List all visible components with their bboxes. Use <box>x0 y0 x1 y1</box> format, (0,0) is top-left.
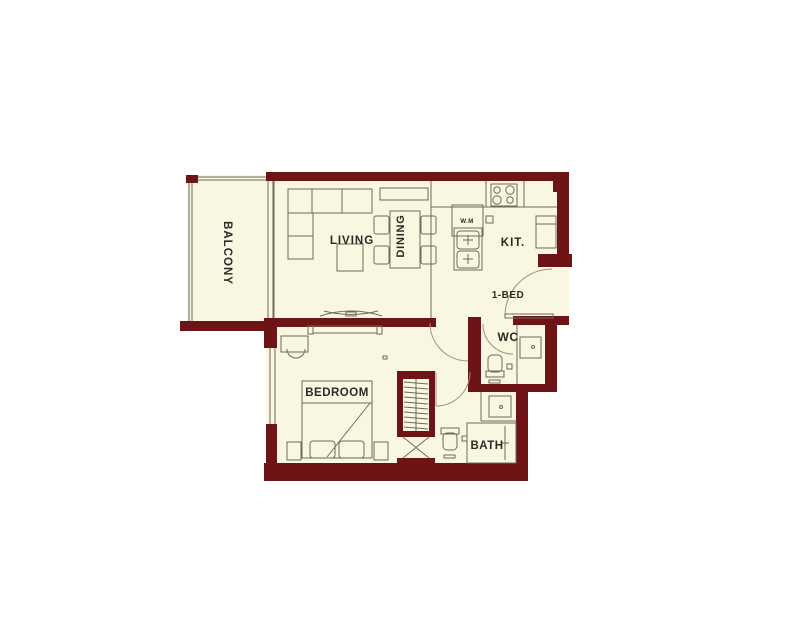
wall-bottom <box>264 463 528 481</box>
wall-top <box>266 172 557 181</box>
shaft-top-bar <box>397 431 435 437</box>
living-label: LIVING <box>330 235 374 247</box>
dining-label: DINING <box>395 214 407 257</box>
balcony-label: BALCONY <box>221 221 233 285</box>
wall-wc-top <box>513 316 569 325</box>
wardrobe-left-bar <box>397 376 403 436</box>
wall-wc-right <box>545 325 557 387</box>
bedroom-label: BEDROOM <box>305 387 369 399</box>
entrance-threshold <box>545 266 569 318</box>
bath-label: BATH <box>470 440 503 452</box>
wall-balcony-corner <box>186 175 198 183</box>
wc-label: WC <box>498 330 519 344</box>
wall-left-lower <box>266 424 277 467</box>
wall-entrance-block <box>538 254 572 267</box>
wall-wc-bottom <box>468 384 557 392</box>
wall-right-upper <box>557 181 569 254</box>
kitchen-label: KIT. <box>501 237 525 249</box>
washing-machine-label: W.M <box>460 219 473 225</box>
floor-plan-page: BALCONY LIVING DINING KIT. 1-BED WC BEDR… <box>0 0 796 640</box>
unit-type-label: 1-BED <box>492 290 525 301</box>
wall-bath-right <box>516 392 528 467</box>
wall-balcony-bottom <box>180 321 275 331</box>
wardrobe-right-bar <box>429 376 435 436</box>
floor-plan: BALCONY LIVING DINING KIT. 1-BED WC BEDR… <box>0 0 796 640</box>
shaft-bottom-bar <box>397 458 435 467</box>
